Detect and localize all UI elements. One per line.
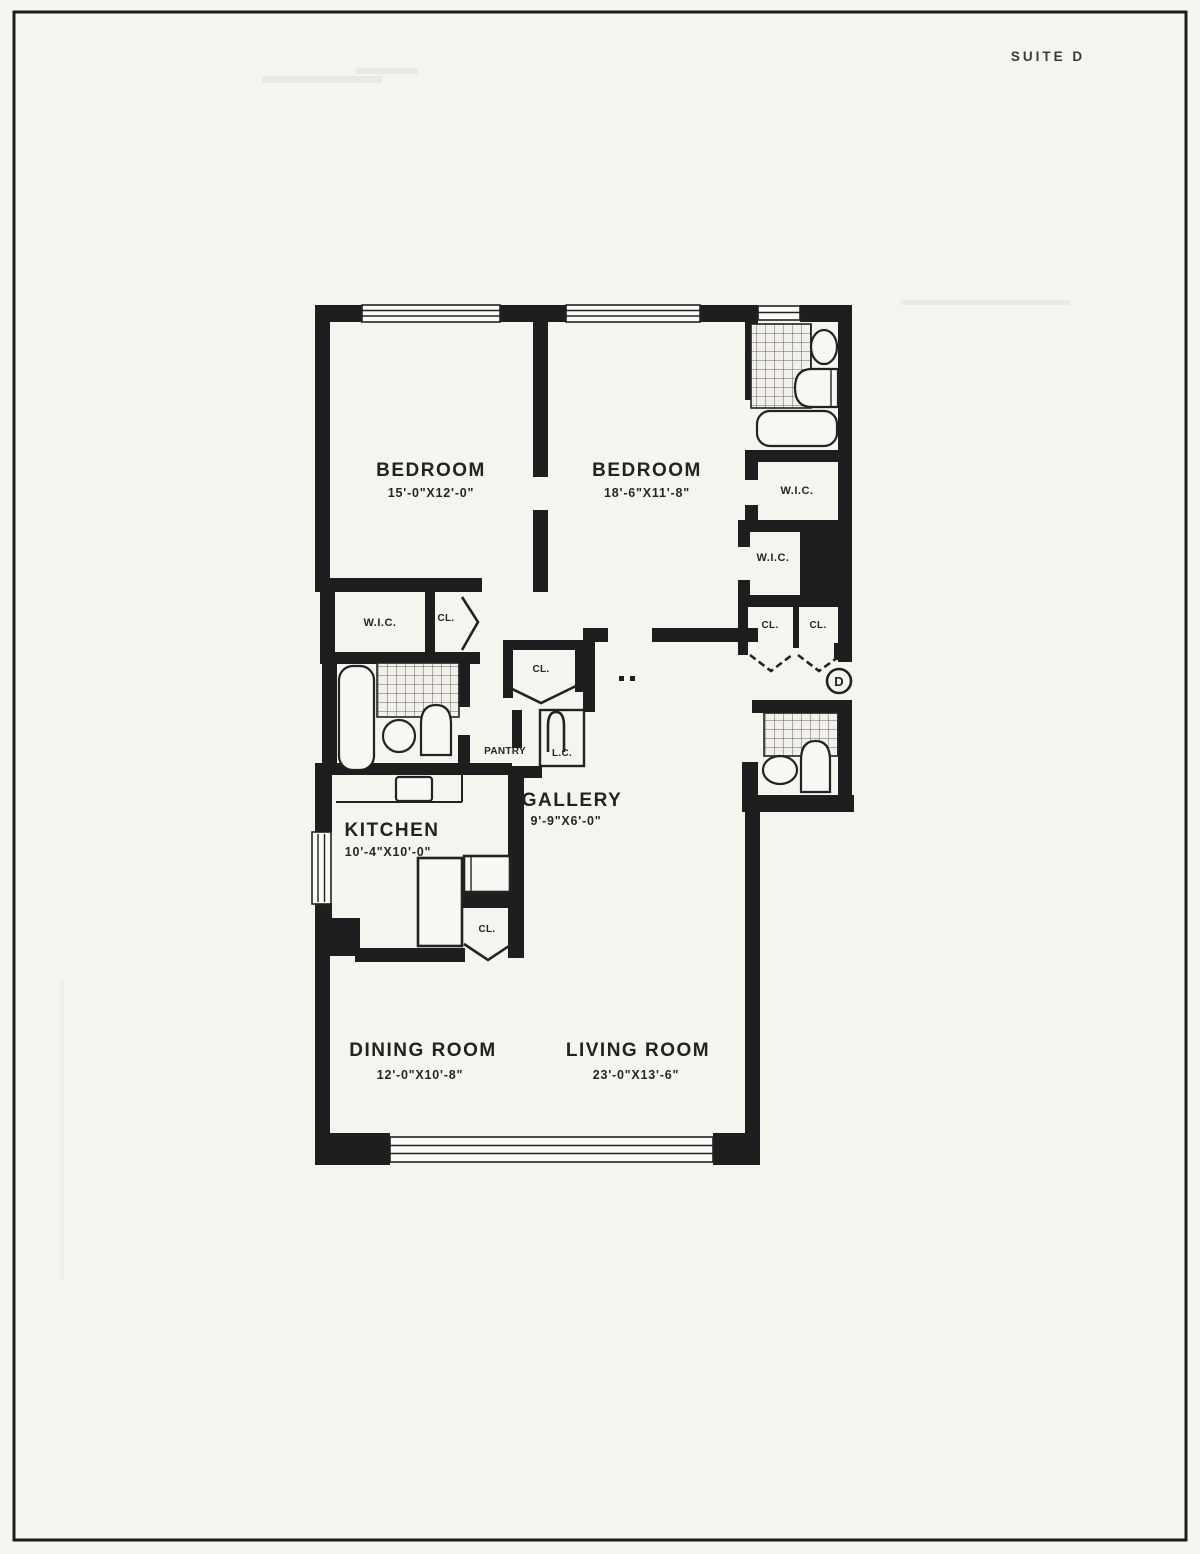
bathroom-left [339, 663, 459, 770]
cl-entry-left-label: CL. [761, 620, 778, 631]
toilet [801, 741, 830, 792]
wic-right-upper-label: W.I.C. [781, 485, 814, 497]
door-mark [630, 676, 635, 681]
window-bedroom-right [566, 305, 700, 322]
entry-door-badge: D [827, 669, 851, 693]
sink [763, 756, 797, 784]
kitchen-closet-bifold [464, 944, 512, 960]
refrigerator [418, 858, 462, 946]
bedroom-right-name: BEDROOM [592, 460, 702, 481]
living-room-dims: 23'-0"X13'-6" [593, 1068, 680, 1082]
bedroom-left-dims: 15'-0"X12'-0" [388, 486, 475, 500]
linen-closet-label: L.C. [552, 748, 572, 759]
entry-door-label: D [834, 674, 843, 689]
bathroom-top-right [751, 324, 838, 446]
pantry-label: PANTRY [484, 746, 526, 757]
gallery-name: GALLERY [522, 790, 623, 811]
gallery-dims: 9'-9"X6'-0" [530, 814, 601, 828]
sink [383, 720, 415, 752]
bathtub [757, 411, 837, 446]
hall-closet-bifold [506, 686, 576, 703]
kitchen-dims: 10'-4"X10'-0" [345, 845, 432, 859]
dining-room-name: DINING ROOM [349, 1040, 496, 1061]
sink [811, 330, 837, 364]
toilet [421, 705, 451, 755]
entry-closet-bifold-left [750, 655, 792, 671]
door-mark [619, 676, 624, 681]
bedroom-right-dims: 18'-6"X11'-8" [604, 486, 690, 500]
wic-right-lower-label: W.I.C. [757, 552, 790, 564]
living-room-name: LIVING ROOM [566, 1040, 710, 1061]
kitchen-name: KITCHEN [345, 820, 440, 841]
cl-hall-label: CL. [532, 664, 549, 675]
bathtub [339, 666, 374, 770]
cl-entry-right-label: CL. [809, 620, 826, 631]
linen-closet-door [548, 712, 564, 752]
dining-room-dims: 12'-0"X10'-8" [377, 1068, 464, 1082]
cl-kitchen-label: CL. [478, 924, 495, 935]
scan-artifacts [60, 68, 1070, 1280]
cl-left-label: CL. [437, 613, 454, 624]
suite-label: SUITE D [1011, 49, 1085, 64]
bedroom-left-name: BEDROOM [376, 460, 486, 481]
scanned-floorplan-page: { "page": { "suite_label": "SUITE D" }, … [0, 0, 1200, 1554]
window-kitchen [312, 832, 331, 904]
powder-room [763, 713, 838, 792]
closet-door-left [462, 597, 478, 650]
floorplan-canvas: SUITE D [0, 0, 1200, 1554]
page-border [14, 12, 1186, 1540]
kitchen-sink [396, 777, 432, 801]
window-bedroom-left [362, 305, 500, 322]
window-living-dining [390, 1137, 713, 1162]
wic-left-label: W.I.C. [364, 617, 397, 629]
kitchen-fixtures [336, 775, 510, 946]
window-bathroom-top [758, 306, 800, 320]
